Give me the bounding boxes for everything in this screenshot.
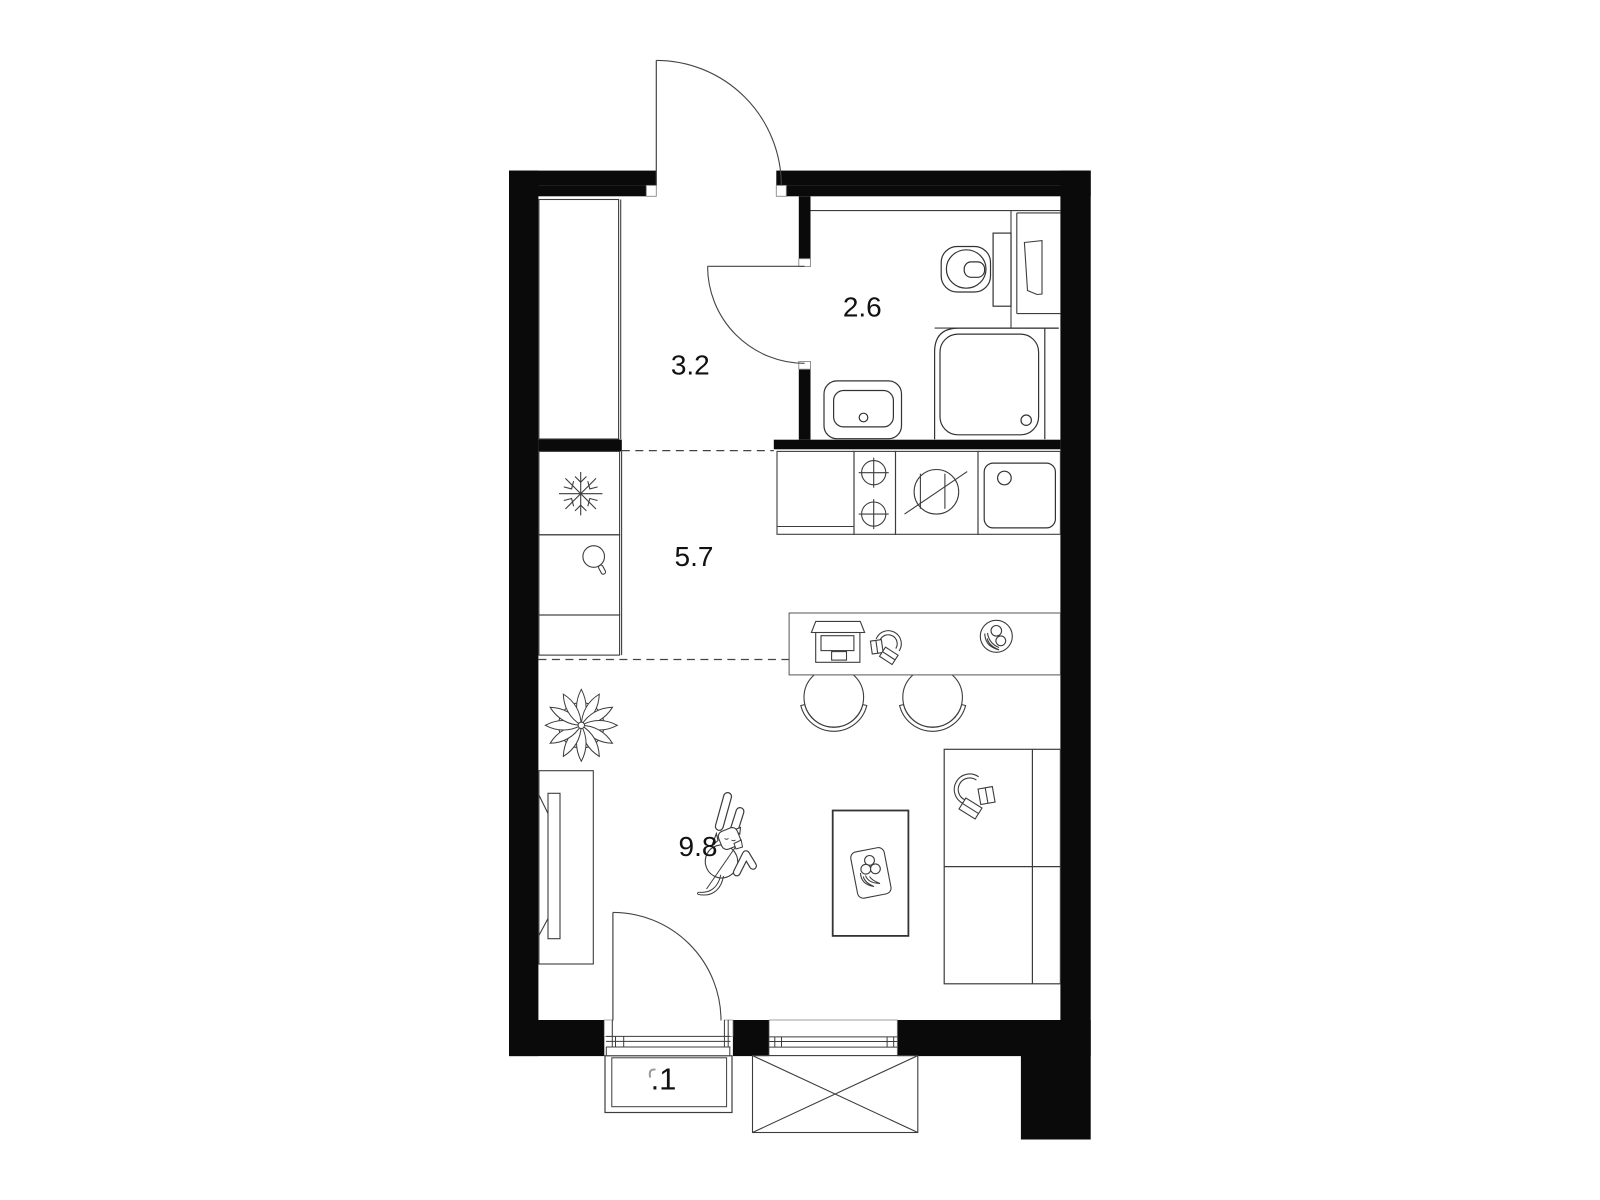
svg-text:.1: .1 [651,1062,677,1097]
svg-text:3.2: 3.2 [671,350,710,381]
svg-text:5.7: 5.7 [675,541,714,572]
svg-text:9.8: 9.8 [679,831,718,862]
svg-text:2.6: 2.6 [843,292,882,323]
